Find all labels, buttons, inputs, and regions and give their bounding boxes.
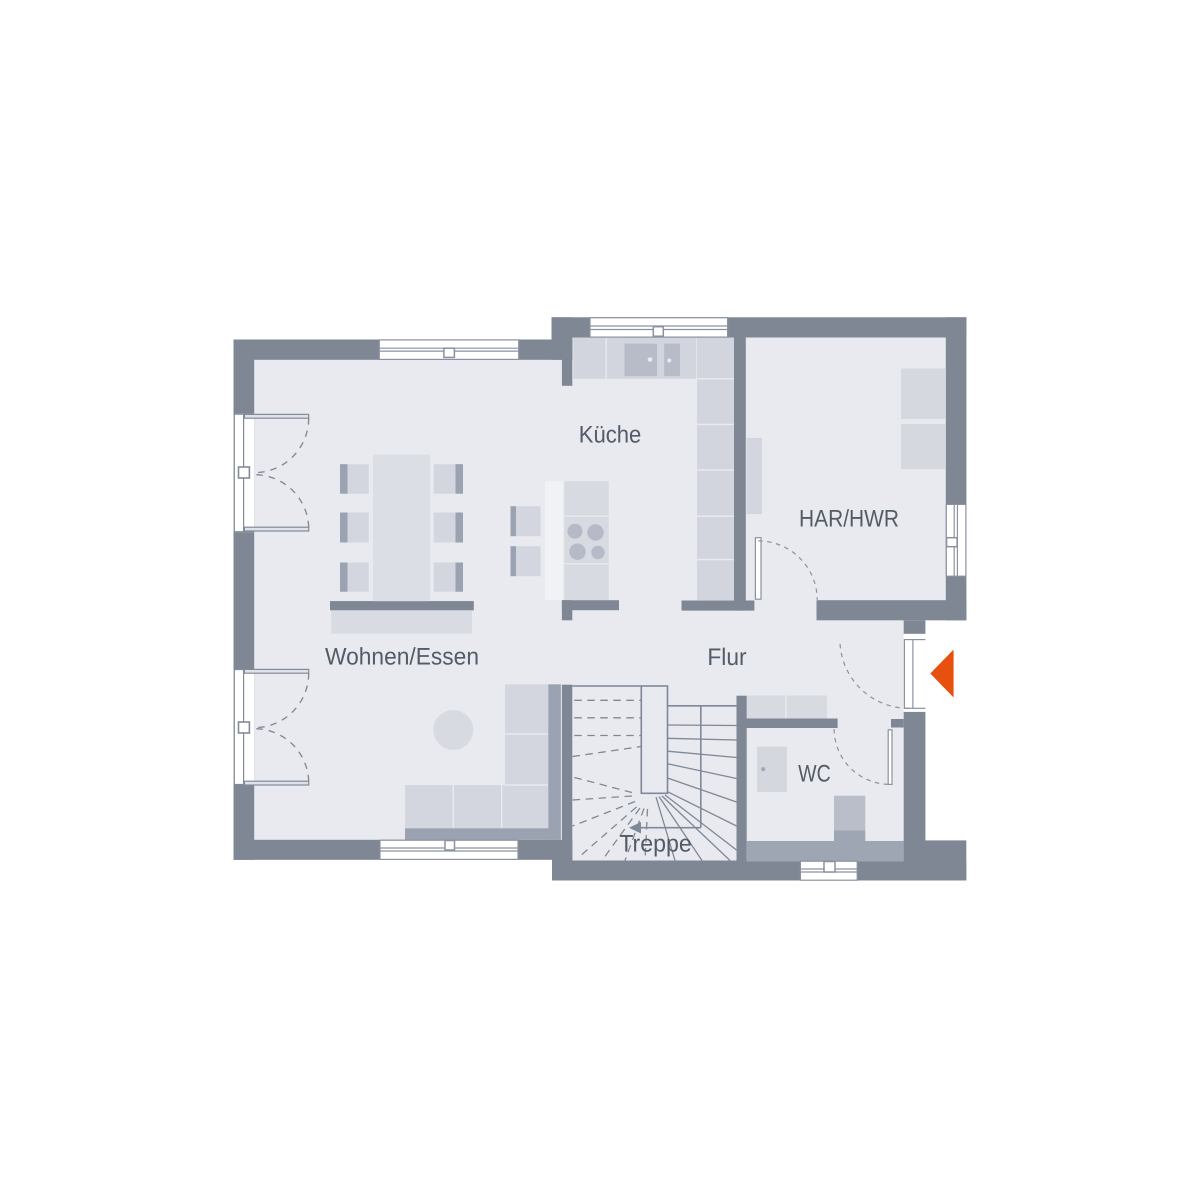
svg-text:Wohnen/Essen: Wohnen/Essen xyxy=(325,643,479,670)
svg-text:WC: WC xyxy=(798,761,831,788)
svg-text:Küche: Küche xyxy=(579,422,642,449)
svg-text:HAR/HWR: HAR/HWR xyxy=(799,505,899,532)
svg-text:Flur: Flur xyxy=(707,644,746,671)
svg-text:Treppe: Treppe xyxy=(619,831,692,858)
